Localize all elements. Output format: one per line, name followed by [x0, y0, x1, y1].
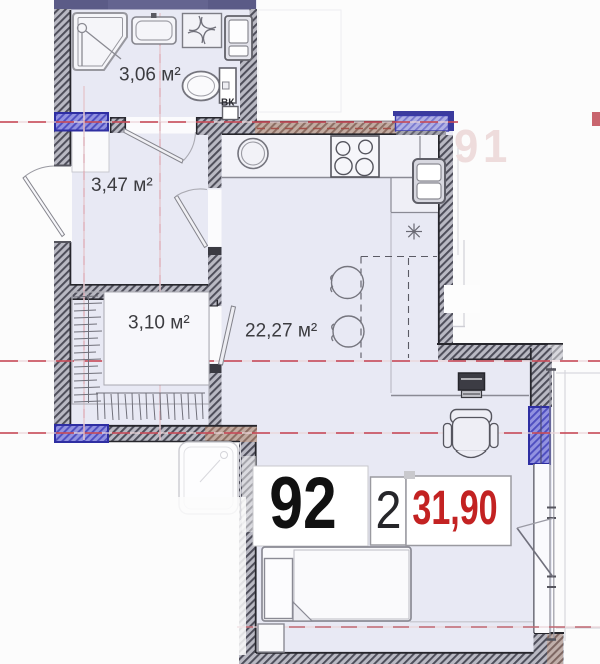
- svg-text:2: 2: [376, 480, 402, 539]
- svg-text:3,06 м²: 3,06 м²: [119, 65, 181, 86]
- svg-text:3,47 м²: 3,47 м²: [91, 175, 153, 196]
- svg-text:22,27 м²: 22,27 м²: [245, 321, 317, 342]
- svg-text:31,90: 31,90: [412, 480, 497, 534]
- svg-text:92: 92: [269, 463, 336, 545]
- svg-text:91: 91: [454, 120, 512, 172]
- svg-text:3,10 м²: 3,10 м²: [128, 313, 190, 334]
